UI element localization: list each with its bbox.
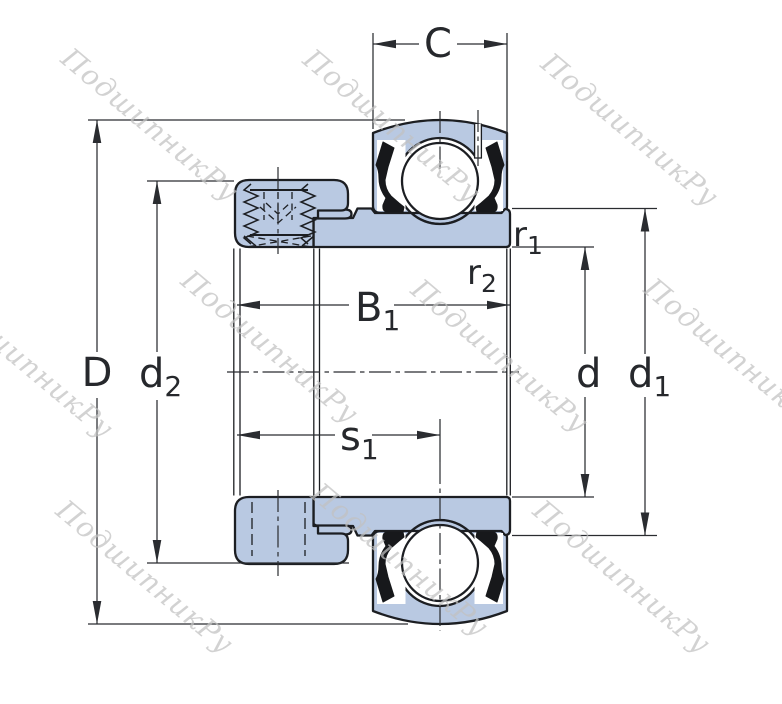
- label-s1: s1: [340, 414, 379, 466]
- label-d2: d2: [139, 351, 182, 403]
- label-C: C: [424, 21, 452, 67]
- label-d: d: [576, 351, 601, 397]
- dimension-s1: s1: [237, 414, 440, 466]
- bearing-drawing-svg: C D d2 B1: [0, 0, 782, 704]
- label-r1: r1: [513, 215, 543, 260]
- label-B1: B1: [355, 285, 400, 337]
- label-D: D: [82, 350, 113, 396]
- label-r2: r2: [467, 253, 497, 298]
- bearing-top-half-section: [235, 120, 510, 247]
- bearing-bottom-half-section: [235, 497, 510, 624]
- label-d1: d1: [628, 351, 671, 403]
- dimension-d: d: [512, 247, 601, 497]
- bearing-technical-drawing: C D d2 B1: [0, 0, 782, 704]
